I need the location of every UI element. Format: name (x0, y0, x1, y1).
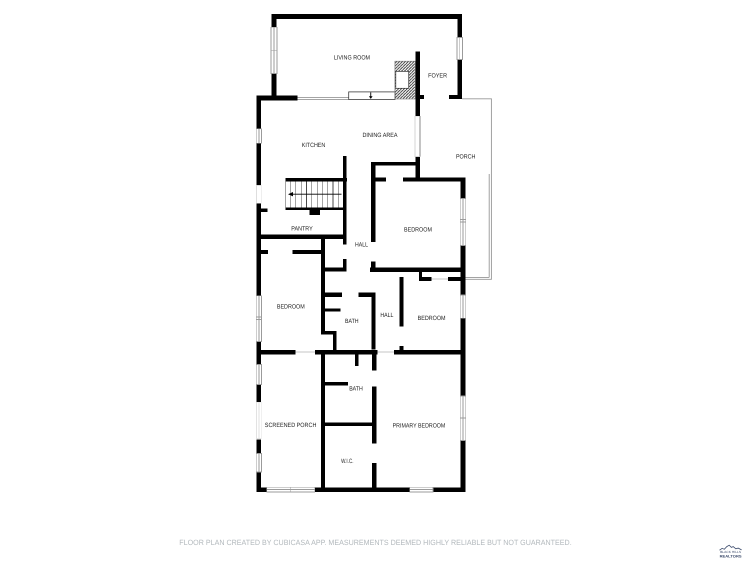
svg-text:BEDROOM: BEDROOM (404, 226, 432, 233)
svg-text:BEDROOM: BEDROOM (418, 315, 446, 322)
svg-text:DINING AREA: DINING AREA (363, 132, 399, 139)
svg-text:FLOOR PLAN CREATED BY CUBICASA: FLOOR PLAN CREATED BY CUBICASA APP. MEAS… (179, 538, 571, 547)
svg-text:FOYER: FOYER (428, 72, 447, 79)
svg-text:HALL: HALL (355, 242, 368, 249)
svg-text:KITCHEN: KITCHEN (302, 142, 326, 149)
svg-text:BATH: BATH (349, 385, 363, 392)
svg-text:LIVING ROOM: LIVING ROOM (334, 54, 370, 61)
svg-text:SCREENED PORCH: SCREENED PORCH (265, 422, 317, 429)
svg-text:BATH: BATH (345, 318, 359, 325)
svg-text:PANTRY: PANTRY (291, 226, 313, 233)
svg-text:W.I.C.: W.I.C. (341, 458, 354, 465)
svg-text:PORCH: PORCH (456, 154, 476, 161)
svg-text:PRIMARY BEDROOM: PRIMARY BEDROOM (393, 423, 446, 430)
svg-text:BEDROOM: BEDROOM (277, 304, 305, 311)
svg-text:HALL: HALL (380, 312, 393, 319)
svg-text:REALTORS: REALTORS (720, 554, 743, 558)
